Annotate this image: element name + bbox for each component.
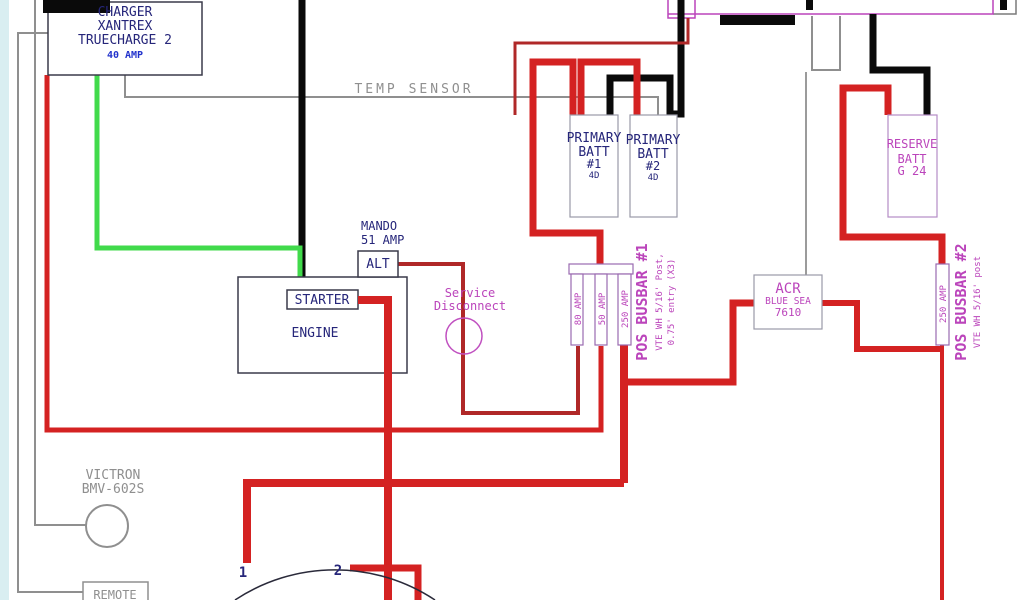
charger-rating: 40 AMP: [107, 50, 143, 61]
reserve-label-1: RESERVE: [887, 137, 938, 151]
fuse-80amp-label: 80 AMP: [574, 292, 584, 325]
charger-label-1: CHARGER: [98, 5, 153, 20]
batt2-label-3: #2: [646, 159, 660, 173]
reserve-label-3: G 24: [898, 164, 927, 178]
scan-edge-strip: [0, 0, 9, 600]
victron-label-1: VICTRON: [86, 468, 141, 483]
remote-label: REMOTE: [93, 588, 136, 600]
starter-label: STARTER: [295, 293, 350, 308]
disconnect-label-2: Disconnect: [434, 299, 506, 313]
busbar1-name: POS BUSBAR #1: [633, 243, 651, 360]
alt-label: ALT: [366, 257, 390, 272]
panel-terminal-bar: [720, 15, 795, 25]
batt1-size: 4D: [589, 171, 600, 181]
busbar2-name: POS BUSBAR #2: [952, 243, 970, 360]
alt-rating: 51 AMP: [361, 233, 404, 247]
engine-label: ENGINE: [292, 326, 339, 341]
charger-label-3: TRUECHARGE 2: [78, 33, 172, 48]
victron-label-2: BMV-602S: [82, 482, 145, 497]
acr-label-3: 7610: [775, 306, 802, 319]
busbar2-fuse-label: 250 AMP: [939, 284, 949, 323]
victron-shunt-symbol: [86, 505, 128, 547]
busbar2-spec: VTE WH 5/16' post: [973, 256, 983, 348]
busbar1-bar: [569, 264, 633, 274]
batt2-size: 4D: [648, 173, 659, 183]
panel-terminal-tick-1: [806, 0, 813, 10]
disconnect-label-1: Service: [445, 286, 496, 300]
switch-terminal2-label: 2: [334, 563, 342, 579]
acr-label-1: ACR: [775, 281, 801, 297]
fuse-250amp-label: 250 AMP: [621, 289, 631, 328]
fuse-50amp-label: 50 AMP: [598, 292, 608, 325]
batt1-label-1: PRIMARY: [567, 131, 622, 146]
temp-sensor-label: TEMP SENSOR: [354, 82, 473, 97]
batt2-label-1: PRIMARY: [626, 133, 681, 148]
switch-terminal1-label: 1: [239, 565, 247, 581]
busbar1-spec-1: VTE WH 5/16' Post,: [655, 253, 665, 351]
charger-label-2: XANTREX: [98, 19, 153, 34]
batt1-label-3: #1: [587, 157, 601, 171]
panel-terminal-tick-2: [1000, 0, 1007, 10]
wiring-diagram: CHARGER XANTREX TRUECHARGE 2 40 AMP TEMP…: [0, 0, 1024, 600]
diagram-canvas: CHARGER XANTREX TRUECHARGE 2 40 AMP TEMP…: [0, 0, 1024, 600]
busbar1-spec-2: 0.75' entry (X3): [667, 259, 677, 346]
alt-make: MANDO: [361, 219, 397, 233]
